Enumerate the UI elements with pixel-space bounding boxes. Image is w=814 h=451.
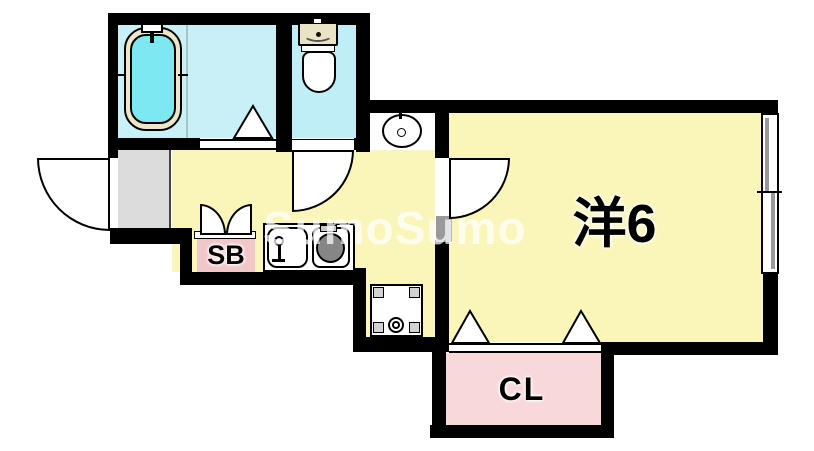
kitchen-faucet-base: [272, 259, 285, 262]
pan-drain-inner: [392, 321, 400, 329]
pan-corner: [409, 287, 420, 298]
bath-faucet-stem: [150, 33, 154, 43]
tub-handle-left: [116, 74, 126, 76]
wall: [108, 138, 200, 150]
western-room-label: 洋6: [532, 186, 697, 250]
closet-door-track: [449, 343, 601, 353]
wall: [601, 342, 614, 438]
closet-label: CL: [455, 368, 589, 410]
bathroom-divider-line: [186, 25, 188, 138]
window-center-tick: [757, 191, 782, 193]
wall: [108, 13, 118, 158]
toilet-handle: [313, 18, 322, 24]
toilet-button: [316, 32, 321, 37]
floor-plan: 洋6 SB CL SumoSumo: [0, 0, 814, 451]
bath-door-track: [200, 139, 276, 150]
stove-burner-tab: [320, 225, 337, 232]
washbasin-faucet-stem: [399, 106, 402, 119]
bathtub-water: [130, 34, 176, 124]
pan-corner: [373, 287, 384, 298]
entrance-genkan-floor: [118, 148, 170, 228]
washbasin-drain: [397, 128, 406, 137]
stove-burner-ring: [316, 233, 345, 263]
sliding-window-icon: [761, 113, 779, 274]
wall: [276, 138, 292, 150]
pan-corner: [373, 322, 384, 333]
tub-handle-right: [178, 74, 188, 76]
entrance-door-arc: [37, 158, 110, 231]
shoe-box-label: SB: [197, 239, 255, 272]
wall: [353, 337, 445, 352]
wall: [430, 425, 614, 438]
toilet-door-opening: [292, 139, 354, 150]
wall: [358, 100, 778, 113]
genkan-step-line: [169, 148, 171, 228]
bath-faucet-icon: [141, 23, 163, 33]
wall: [356, 13, 370, 152]
wall: [435, 100, 449, 158]
window-sash-upper: [765, 118, 769, 192]
wall: [354, 138, 370, 150]
wall: [180, 228, 192, 285]
wall: [435, 240, 449, 352]
pan-corner: [409, 322, 420, 333]
toilet-bowl-icon: [302, 51, 336, 93]
door-jamb-shading: [436, 216, 452, 242]
wall: [192, 272, 365, 285]
wall: [601, 342, 778, 355]
wall: [276, 13, 292, 152]
wall: [432, 342, 446, 438]
window-sash-lower: [771, 193, 775, 269]
